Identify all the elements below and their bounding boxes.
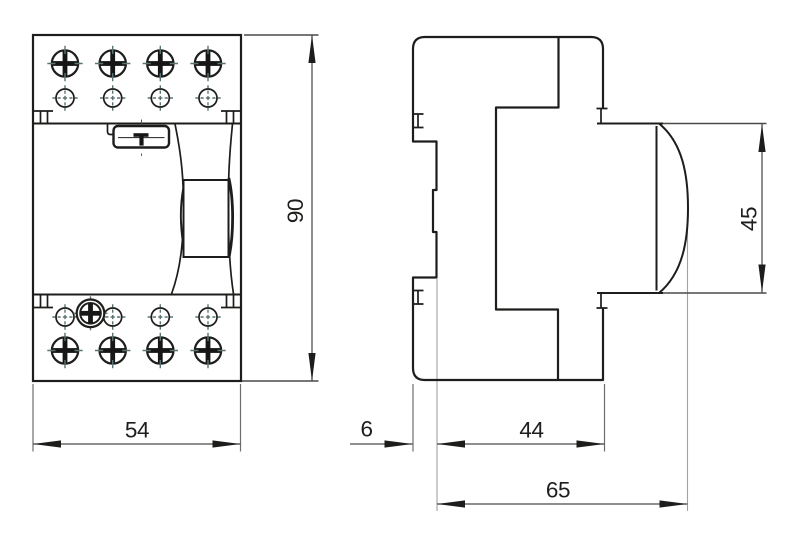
- dim-label-rail-offset: 6: [360, 417, 372, 442]
- front-view: [33, 35, 241, 381]
- arrowhead-down: [308, 353, 315, 381]
- arrowhead-right: [577, 440, 605, 447]
- side-body-outline: [413, 37, 603, 380]
- technical-drawing-canvas: 54 90 6 44 65 45: [0, 0, 800, 547]
- cover-bulge-curve: [659, 124, 688, 294]
- arrowhead-up: [758, 124, 765, 152]
- arrowhead-left: [33, 440, 61, 447]
- arrowhead-left: [437, 440, 465, 447]
- arrowhead-left: [437, 500, 465, 507]
- label-window: [184, 180, 229, 257]
- toggle-screw-stem: [139, 136, 143, 146]
- dim-label-total-depth: 65: [546, 478, 570, 503]
- side-view: [413, 37, 688, 380]
- dimension-drawing-svg: 54 90 6 44 65 45: [0, 0, 800, 547]
- dim-label-cover-height: 45: [737, 207, 762, 231]
- dim-label-body-depth: 44: [519, 418, 543, 443]
- dim-label-front-width: 54: [125, 418, 149, 443]
- dim-label-front-height: 90: [283, 199, 308, 223]
- arrowhead-right: [213, 440, 241, 447]
- side-interior-contour: [496, 37, 559, 380]
- arrowhead-right: [385, 440, 413, 447]
- side-right-slot-marks: [597, 109, 608, 309]
- arrowhead-down: [758, 265, 765, 293]
- arrowhead-up: [308, 35, 315, 63]
- arrowhead-right: [660, 500, 688, 507]
